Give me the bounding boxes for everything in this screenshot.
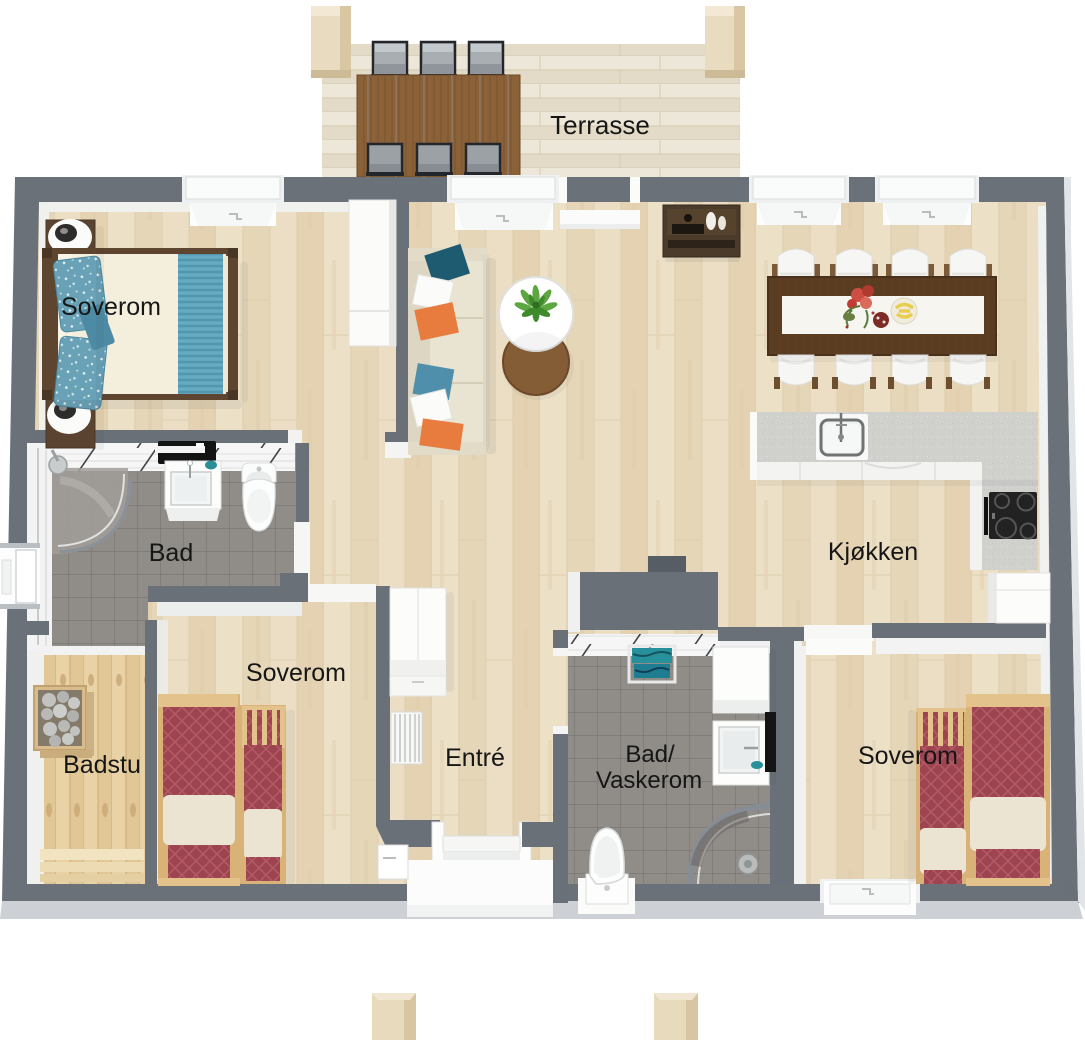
- svg-text:Soverom: Soverom: [858, 742, 958, 770]
- svg-text:Vaskerom: Vaskerom: [596, 767, 702, 794]
- svg-text:Terrasse: Terrasse: [550, 110, 650, 140]
- svg-text:Entré: Entré: [445, 744, 505, 772]
- svg-text:Badstu: Badstu: [63, 751, 141, 779]
- svg-text:Kjøkken: Kjøkken: [828, 538, 918, 566]
- svg-text:Bad: Bad: [149, 539, 193, 567]
- svg-text:Soverom: Soverom: [246, 659, 346, 687]
- svg-text:Soverom: Soverom: [61, 293, 161, 321]
- svg-text:Bad/: Bad/: [625, 741, 675, 768]
